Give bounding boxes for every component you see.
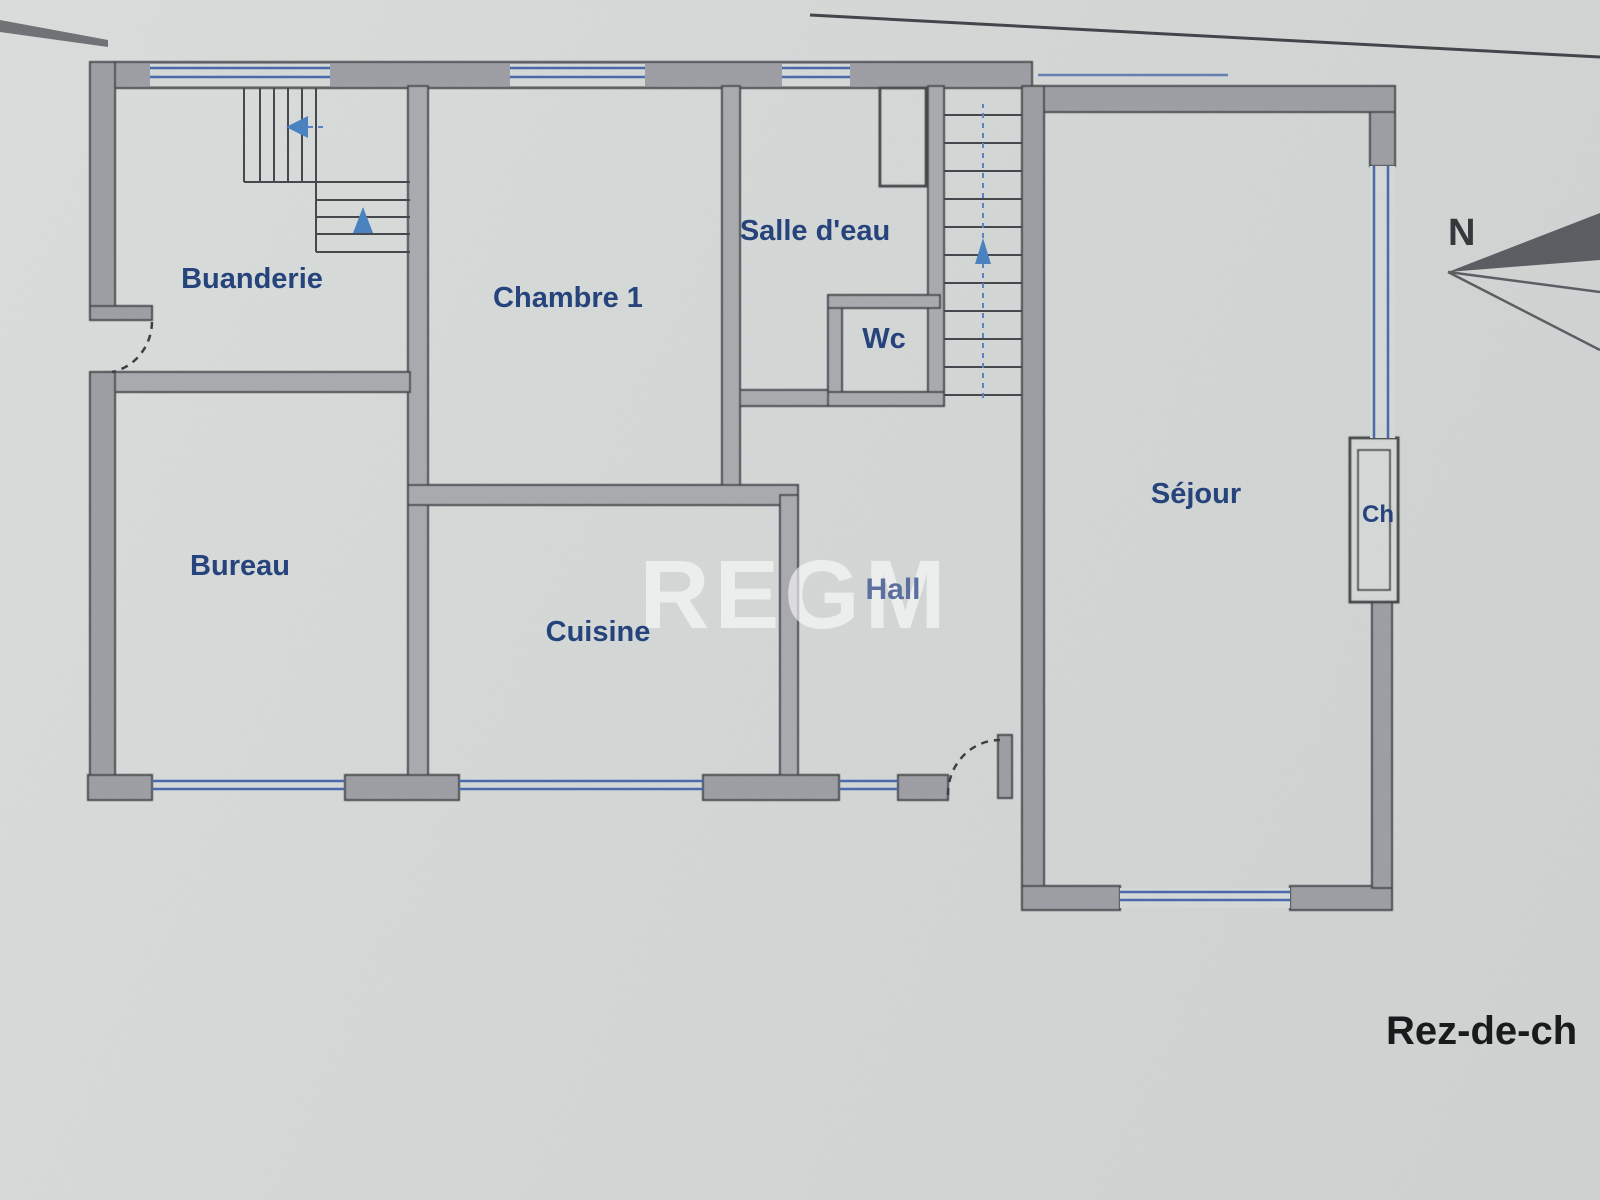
door-arc-entrance — [948, 740, 1000, 795]
wall-sejour-left — [1022, 86, 1044, 886]
floor-plan-drawing: N REGM Buanderie Chambre 1 Salle d'eau W… — [0, 0, 1600, 1200]
room-label-cuisine: Cuisine — [546, 616, 651, 648]
entrance-door-jamb — [998, 735, 1012, 798]
room-label-hall: Hall — [865, 573, 920, 606]
stairs-main — [944, 104, 1022, 398]
room-label-cheminee: Ch — [1362, 501, 1394, 528]
room-label-salle-eau: Salle d'eau — [740, 215, 890, 247]
stairs-up-arrow-icon — [975, 238, 991, 264]
north-arrow: N — [1448, 212, 1600, 350]
wc-wall-top — [828, 295, 940, 308]
compass-label: N — [1448, 212, 1475, 254]
door-arc-buanderie — [112, 322, 152, 372]
adjacent-page-edge-topright — [810, 15, 1600, 57]
adjacent-page-edge-topleft — [0, 20, 108, 47]
wall-bottom-seg4 — [898, 775, 948, 800]
room-label-chambre-1: Chambre 1 — [493, 282, 643, 314]
wall-sejour-bottom-seg2 — [1290, 886, 1392, 910]
wall-chambre-salle-eau — [722, 86, 740, 505]
wall-top-sejour — [1022, 86, 1395, 112]
wall-bottom-seg3 — [703, 775, 839, 800]
wall-left-upper — [90, 62, 115, 310]
wall-bottom-seg1 — [88, 775, 152, 800]
wall-bottom-seg2 — [345, 775, 459, 800]
stairs-left-arrow-icon — [286, 116, 308, 138]
room-label-buanderie: Buanderie — [181, 263, 323, 295]
stairs-buanderie — [244, 88, 410, 252]
floor-plan-photo: N REGM Buanderie Chambre 1 Salle d'eau W… — [0, 0, 1600, 1200]
wall-salle-eau-bottom — [740, 390, 832, 406]
room-label-sejour: Séjour — [1151, 478, 1241, 510]
wall-sejour-bottom-seg1 — [1022, 886, 1120, 910]
room-label-wc: Wc — [862, 323, 906, 355]
room-label-bureau: Bureau — [190, 550, 290, 582]
wc-wall-left — [828, 295, 842, 406]
wall-right-top — [1370, 112, 1395, 166]
floor-title: Rez-de-ch — [1386, 1009, 1577, 1053]
wall-left-door-stub — [90, 306, 152, 320]
wc-wall-bottom — [828, 392, 944, 406]
wall-buanderie-bureau — [115, 372, 410, 392]
wall-left-lower — [90, 372, 115, 800]
wall-right-bottom — [1372, 602, 1392, 888]
wall-cuisine-top — [408, 485, 798, 505]
wall-buanderie-chambre — [408, 86, 428, 775]
duct-box — [880, 88, 926, 186]
wall-stairwell-left — [928, 86, 944, 406]
stairs-up-arrow2-icon — [353, 207, 373, 233]
